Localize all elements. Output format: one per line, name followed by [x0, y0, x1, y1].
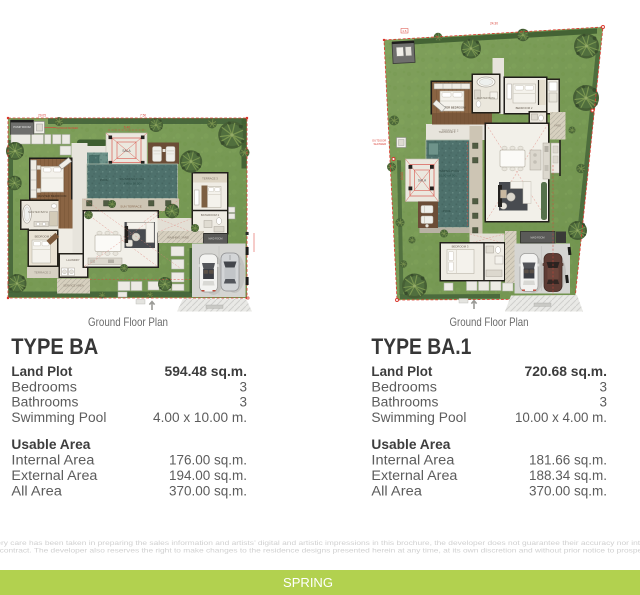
svg-text:7.50: 7.50: [140, 114, 146, 118]
svg-text:TERRACE 3: TERRACE 3: [202, 177, 218, 181]
svg-text:10.00: 10.00: [400, 172, 404, 180]
svg-text:SUN TERRACE: SUN TERRACE: [120, 205, 141, 209]
svg-text:181.66 sq.m.: 181.66 sq.m.: [529, 452, 607, 467]
svg-text:to form part of any offer or c: to form part of any offer or contract. T…: [0, 548, 640, 555]
svg-text:Swimming Pool: Swimming Pool: [371, 410, 466, 425]
svg-text:194.00 sq.m.: 194.00 sq.m.: [169, 468, 247, 483]
svg-text:24.30: 24.30: [490, 22, 498, 26]
svg-text:594.48 sq.m.: 594.48 sq.m.: [165, 364, 248, 379]
svg-text:MASTER BEDROOM: MASTER BEDROOM: [38, 194, 67, 198]
svg-text:3: 3: [239, 395, 247, 410]
svg-text:POOL: POOL: [100, 178, 109, 182]
svg-text:BATHROOM 2: BATHROOM 2: [201, 213, 220, 217]
svg-text:BEDROOM 3: BEDROOM 3: [35, 235, 52, 239]
svg-text:Internal Area: Internal Area: [371, 452, 455, 467]
svg-text:Bathrooms: Bathrooms: [11, 395, 78, 410]
svg-text:SALA: SALA: [122, 149, 131, 153]
svg-text:MAID ROOM: MAID ROOM: [208, 238, 222, 241]
svg-text:370.00 sq.m.: 370.00 sq.m.: [169, 483, 247, 498]
svg-text:1.6: 1.6: [402, 29, 407, 33]
svg-text:MASTER BATH: MASTER BATH: [477, 96, 495, 100]
svg-text:TYPE BA: TYPE BA: [11, 334, 98, 359]
svg-text:MAID ROOM: MAID ROOM: [530, 236, 544, 239]
svg-text:TERRACE 2: TERRACE 2: [442, 129, 459, 133]
svg-text:YARD: YARD: [554, 124, 561, 128]
svg-text:Usable Area: Usable Area: [371, 437, 450, 452]
svg-text:176.00 sq.m.: 176.00 sq.m.: [169, 452, 247, 467]
svg-text:External Area: External Area: [371, 468, 458, 483]
svg-text:BEDROOM 2: BEDROOM 2: [516, 106, 533, 110]
svg-text:BEDROOM 3: BEDROOM 3: [452, 245, 469, 249]
svg-text:WASHING YARD: WASHING YARD: [167, 236, 189, 240]
svg-text:Internal Area: Internal Area: [11, 452, 95, 467]
svg-text:Swimming Pool: Swimming Pool: [11, 410, 106, 425]
svg-text:720.68 sq.m.: 720.68 sq.m.: [525, 364, 608, 379]
svg-text:SWIMMING POOL: SWIMMING POOL: [119, 177, 144, 181]
svg-text:3: 3: [599, 379, 607, 394]
svg-text:Ground Floor Plan: Ground Floor Plan: [88, 315, 168, 329]
svg-text:TERRACE 2: TERRACE 2: [34, 271, 51, 275]
svg-text:SPRING: SPRING: [283, 575, 333, 590]
svg-text:Land Plot: Land Plot: [371, 364, 432, 379]
svg-text:Usable Area: Usable Area: [11, 437, 90, 452]
svg-text:All Area: All Area: [11, 483, 62, 498]
svg-text:4.00 x 10.00: 4.00 x 10.00: [124, 181, 141, 185]
svg-text:Bathrooms: Bathrooms: [371, 395, 438, 410]
svg-text:SERVICE AREA: SERVICE AREA: [63, 284, 84, 288]
svg-text:3: 3: [599, 395, 607, 410]
svg-text:TYPE BA.1: TYPE BA.1: [371, 334, 471, 359]
svg-text:POOL: POOL: [443, 209, 452, 213]
svg-text:LAUNDRY: LAUNDRY: [66, 258, 79, 262]
svg-text:188.34 sq.m.: 188.34 sq.m.: [529, 468, 607, 483]
svg-text:5.40: 5.40: [124, 126, 131, 130]
svg-text:SHOWER: SHOWER: [374, 142, 387, 146]
svg-text:Land Plot: Land Plot: [11, 364, 72, 379]
svg-text:370.00 sq.m.: 370.00 sq.m.: [529, 483, 607, 498]
svg-text:OUTDOOR SHOWER: OUTDOOR SHOWER: [56, 126, 78, 130]
svg-text:Bedrooms: Bedrooms: [11, 379, 77, 394]
svg-text:All Area: All Area: [371, 483, 422, 498]
svg-text:Bedrooms: Bedrooms: [371, 379, 437, 394]
svg-text:3: 3: [239, 379, 247, 394]
svg-text:SALA: SALA: [418, 179, 427, 183]
svg-text:4.00 x 10.00 m.: 4.00 x 10.00 m.: [153, 410, 247, 425]
svg-text:29.05: 29.05: [38, 114, 46, 118]
svg-text:Ground Floor Plan: Ground Floor Plan: [450, 315, 529, 329]
svg-text:10.00 x 4.00: 10.00 x 4.00: [439, 173, 456, 177]
svg-text:Every care has been taken in p: Every care has been taken in preparing t…: [0, 540, 640, 547]
svg-text:External Area: External Area: [11, 468, 98, 483]
svg-text:PUMP ROOM: PUMP ROOM: [13, 125, 31, 129]
svg-text:10.00 x 4.00 m.: 10.00 x 4.00 m.: [515, 410, 607, 425]
svg-text:MASTER BATH: MASTER BATH: [28, 210, 48, 214]
